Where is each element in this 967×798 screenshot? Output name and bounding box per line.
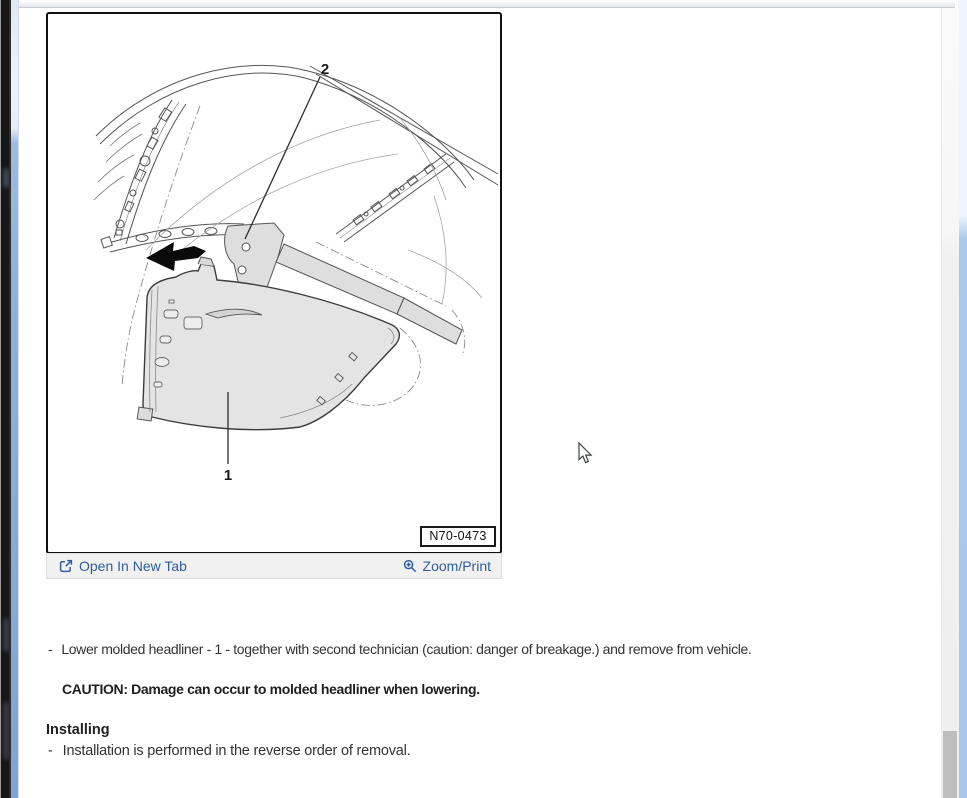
vertical-scrollbar-track[interactable]: [941, 8, 959, 798]
zoom-print-label: Zoom/Print: [423, 558, 491, 574]
open-in-new-tab-link[interactable]: Open In New Tab: [59, 558, 187, 574]
installing-heading: Installing: [46, 722, 110, 738]
technical-illustration: 2 1: [48, 14, 500, 552]
mouse-cursor: [578, 442, 594, 471]
open-in-new-tab-label: Open In New Tab: [79, 558, 187, 574]
top-chrome-bar: [19, 0, 955, 8]
zoom-print-link[interactable]: Zoom/Print: [403, 558, 491, 574]
removal-direction-arrow: [146, 242, 206, 271]
part-label-2: 2: [321, 61, 329, 78]
bullet-dash: -: [48, 641, 52, 657]
window-edge-black: [1, 0, 9, 798]
step-install-bullet: - Installation is performed in the rever…: [48, 743, 648, 759]
open-in-new-tab-icon: [59, 559, 73, 573]
step-install-text: Installation is performed in the reverse…: [63, 743, 411, 759]
bullet-dash: -: [48, 743, 53, 759]
window-edge-right-blue: [958, 0, 967, 798]
caution-note: CAUTION: Damage can occur to molded head…: [62, 681, 480, 697]
app-window: 2 1 N70-0473 Open In New Tab: [0, 0, 967, 798]
figure-toolbar: Open In New Tab Zoom/Print: [46, 553, 502, 579]
figure-number-badge: N70-0473: [420, 526, 496, 547]
step-remove-text: Lower molded headliner - 1 - together wi…: [61, 641, 751, 657]
window-edge-blue-strip: [11, 0, 18, 798]
vertical-scrollbar-thumb[interactable]: [943, 731, 957, 798]
figure-panel: 2 1 N70-0473: [46, 12, 502, 554]
magnifier-plus-icon: [403, 559, 417, 573]
step-remove-bullet: - Lower molded headliner - 1 - together …: [48, 641, 848, 657]
part-label-1: 1: [224, 467, 232, 484]
window-edge-blue-border: [18, 0, 19, 798]
